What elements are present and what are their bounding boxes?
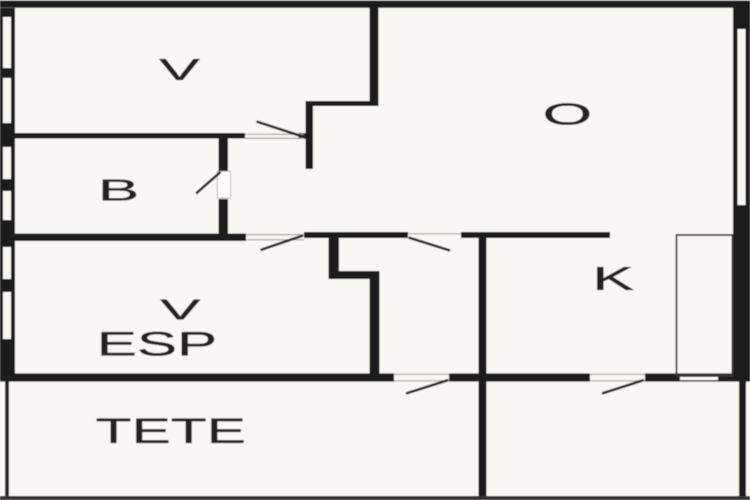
svg-text:K: K [592, 260, 634, 297]
svg-text:ESP: ESP [97, 325, 217, 363]
svg-text:O: O [542, 97, 592, 132]
svg-text:V: V [159, 52, 201, 87]
svg-text:B: B [98, 174, 139, 208]
svg-text:TETE: TETE [96, 412, 246, 451]
svg-text:V: V [160, 294, 201, 326]
